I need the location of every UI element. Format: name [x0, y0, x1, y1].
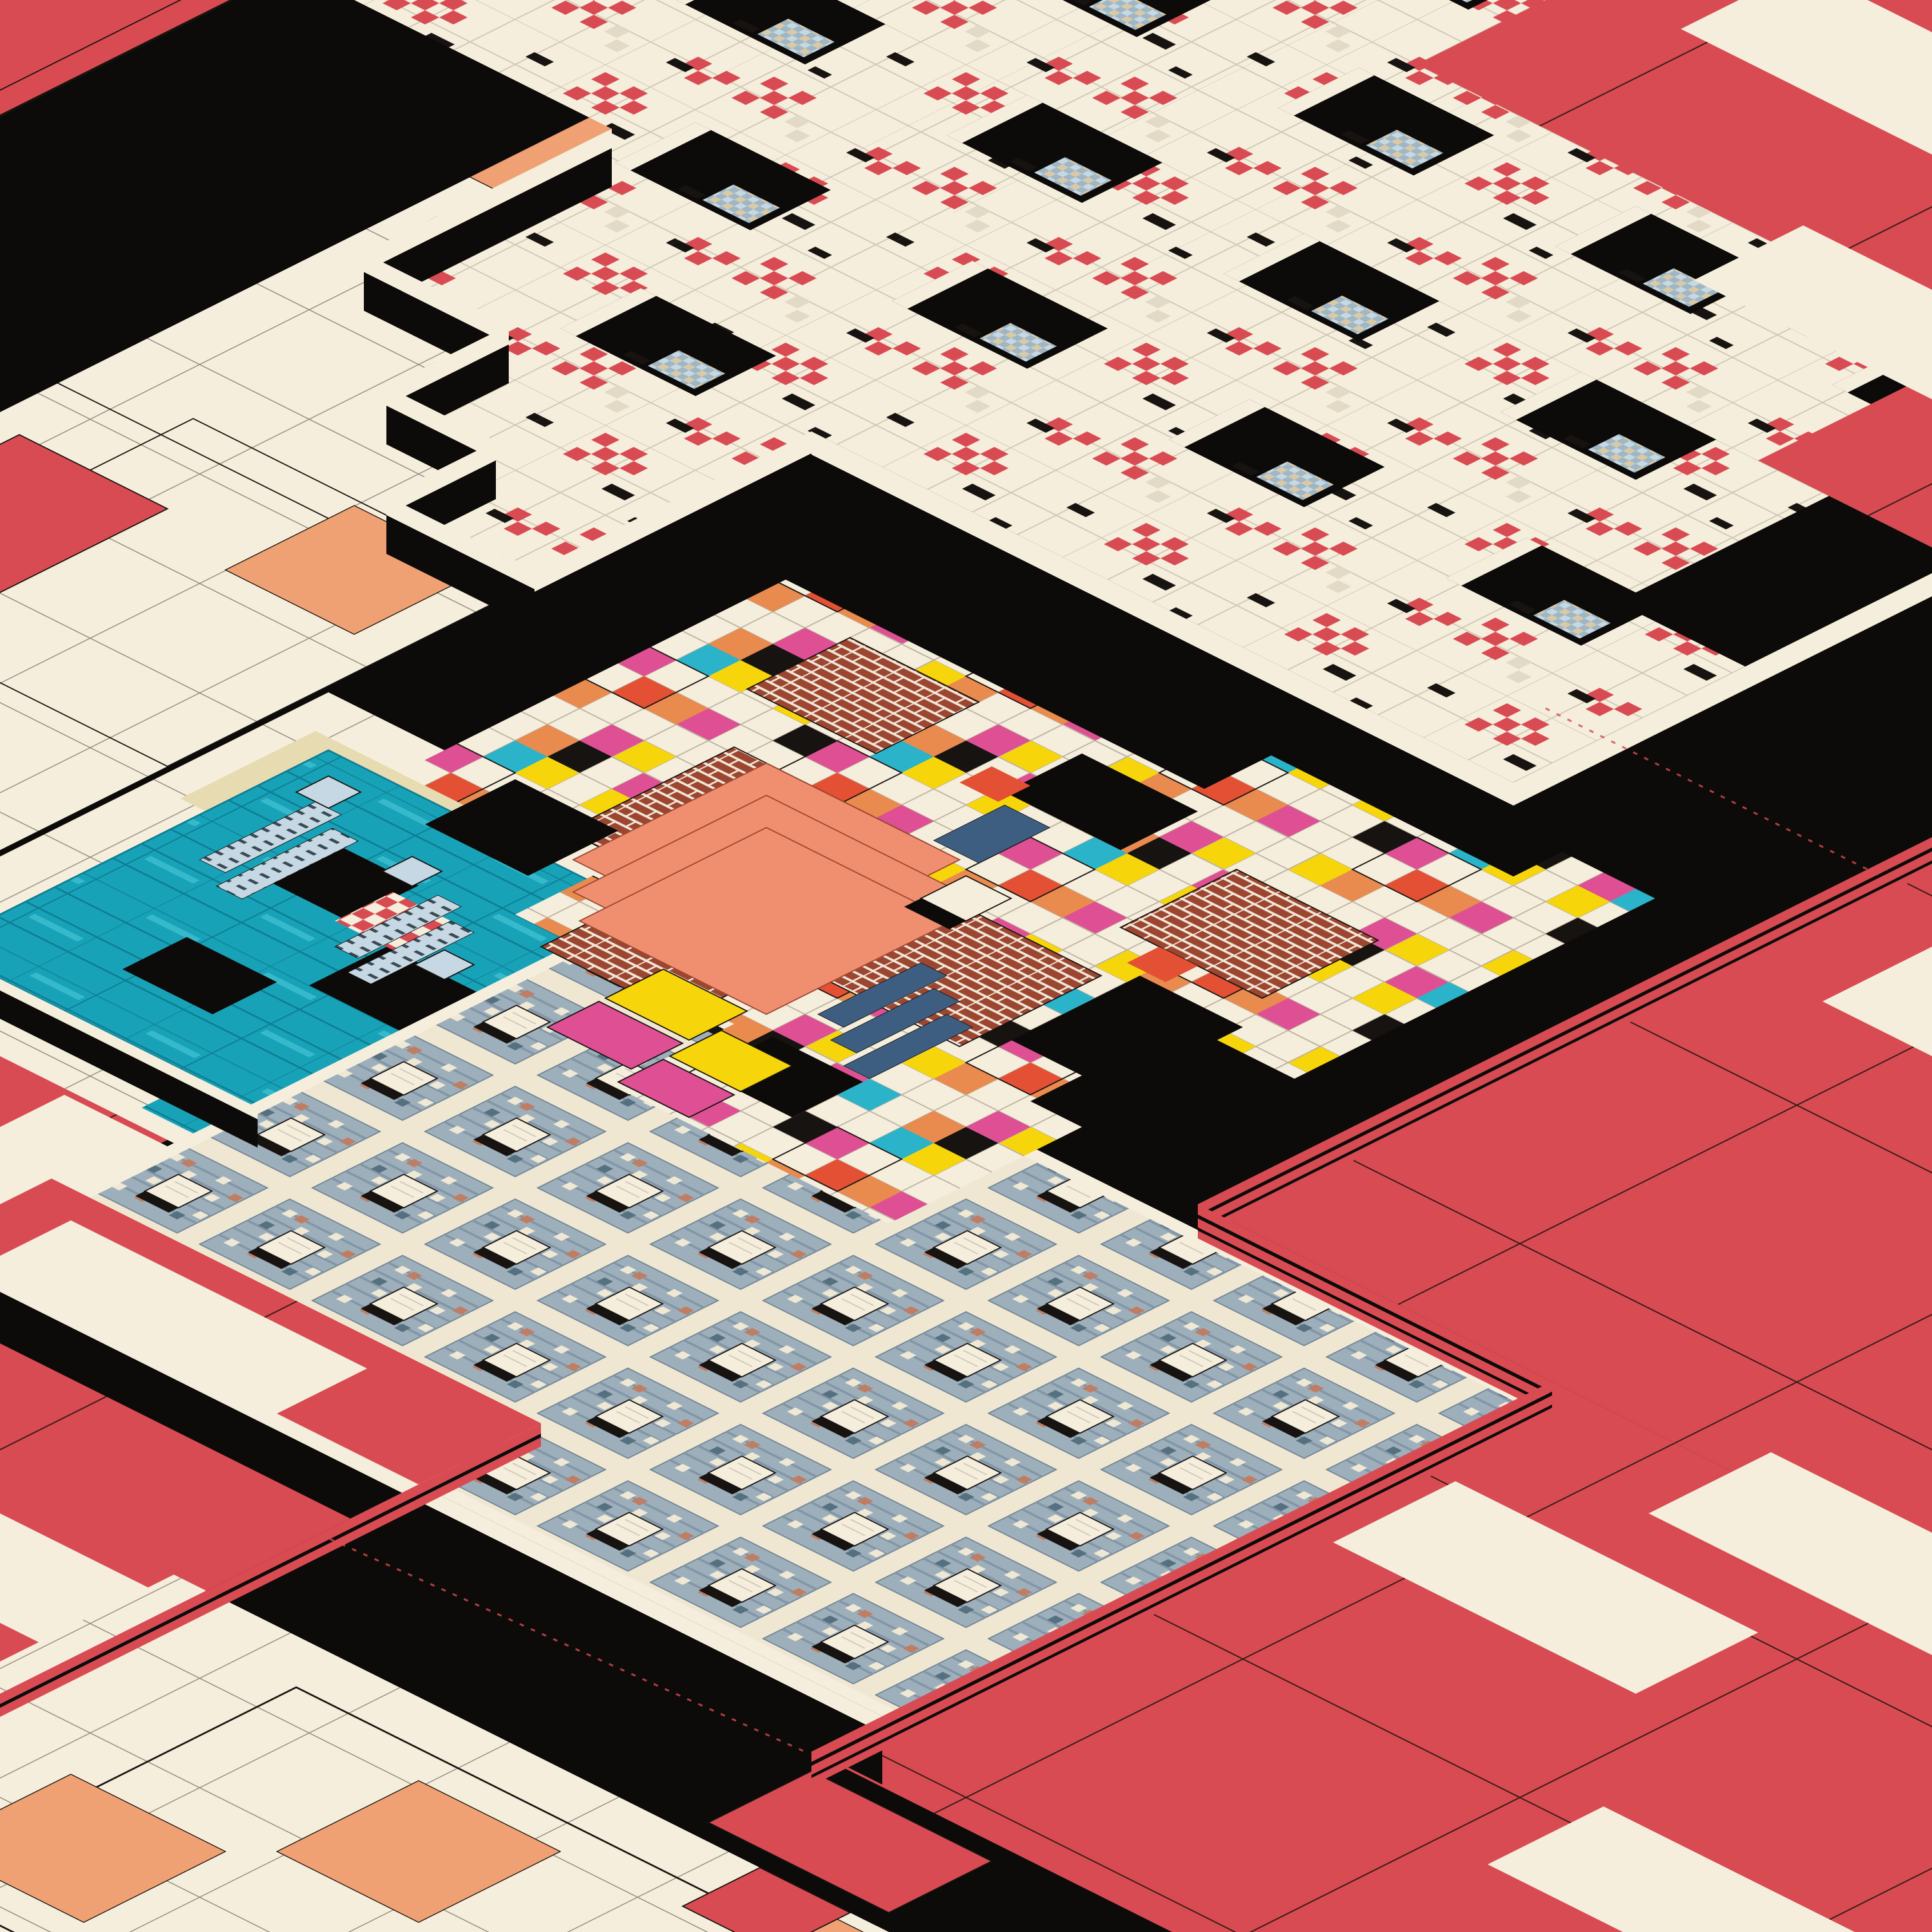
page: { "artwork": { "kind": "generative-isome…	[0, 0, 1932, 1932]
artwork-frame	[0, 0, 1932, 1932]
artwork-canvas	[0, 0, 1932, 1932]
